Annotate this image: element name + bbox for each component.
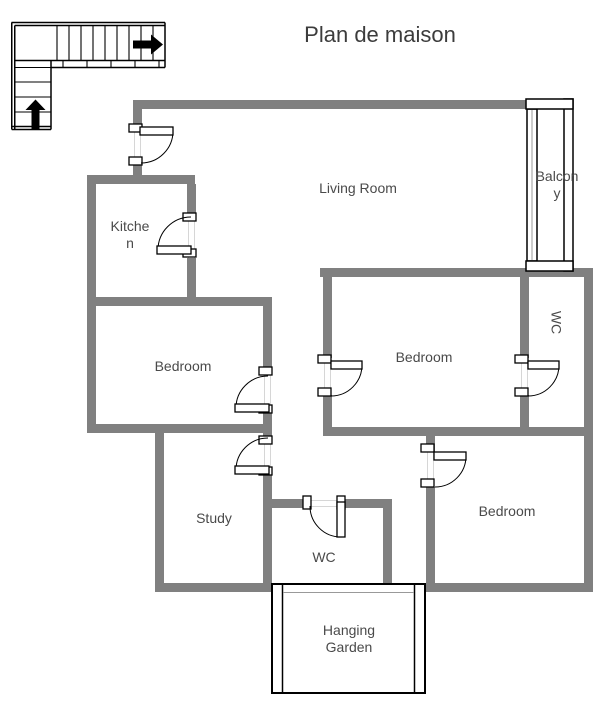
room-label-study: Study bbox=[164, 510, 264, 527]
room-label-balcony: Balcony bbox=[534, 168, 580, 202]
wall-segment bbox=[426, 583, 593, 592]
door-arc bbox=[158, 217, 191, 250]
door-leaf bbox=[140, 127, 173, 135]
door-jamb bbox=[421, 444, 434, 452]
wall-segment bbox=[155, 583, 273, 592]
room-label-bedroom-middle: Bedroom bbox=[374, 349, 474, 366]
wall-segment bbox=[520, 277, 529, 358]
wall-segment bbox=[323, 427, 593, 436]
door-swing-icon bbox=[157, 213, 196, 257]
door-swing-icon bbox=[235, 436, 272, 475]
wall-segment bbox=[187, 184, 196, 217]
door-leaf bbox=[337, 502, 345, 537]
door-swing-icon bbox=[129, 124, 173, 165]
room-label-wc-upper: WC bbox=[548, 303, 565, 343]
door-swing-icon bbox=[235, 367, 272, 413]
room-label-living-room: Living Room bbox=[308, 180, 408, 197]
wall-segment bbox=[87, 424, 272, 433]
floor-plan-canvas bbox=[0, 0, 609, 703]
wall-segment bbox=[263, 474, 272, 583]
door-leaf bbox=[528, 361, 559, 369]
room-label-bedroom-left: Bedroom bbox=[133, 358, 233, 375]
floor-plan-page: Plan de maison bbox=[0, 0, 609, 703]
door-leaf bbox=[157, 246, 191, 254]
wall-segment bbox=[155, 424, 164, 592]
wall-segment bbox=[133, 100, 142, 127]
wall-segment bbox=[383, 499, 392, 583]
up-arrow-icon bbox=[26, 100, 46, 130]
wall-segment bbox=[263, 499, 308, 508]
door-jamb bbox=[515, 355, 528, 363]
door-leaf bbox=[434, 452, 466, 460]
balcony-cap-top bbox=[526, 99, 573, 109]
wall-segment bbox=[87, 297, 272, 306]
wall-segment bbox=[323, 277, 332, 358]
door-jamb bbox=[318, 388, 331, 396]
wall-segment bbox=[520, 395, 529, 436]
room-label-hanging-garden: Hanging Garden bbox=[299, 622, 399, 656]
wall-segment bbox=[133, 100, 527, 109]
door-swing-icon bbox=[303, 496, 345, 537]
door-jamb bbox=[259, 436, 272, 444]
door-jamb bbox=[421, 479, 434, 487]
right-arrow-icon bbox=[133, 35, 163, 55]
door-arc bbox=[141, 131, 173, 163]
wall-segment bbox=[584, 268, 593, 592]
door-leaf bbox=[235, 404, 269, 412]
door-leaf bbox=[235, 466, 269, 474]
wall-segment bbox=[263, 297, 272, 375]
door-leaf bbox=[331, 361, 362, 369]
wall-segment bbox=[426, 487, 435, 583]
door-arc bbox=[236, 376, 268, 408]
balcony-cap-bottom bbox=[526, 261, 573, 271]
wall-segment bbox=[87, 175, 195, 184]
room-label-kitchen: Kitchen bbox=[108, 218, 152, 252]
room-label-wc-lower: WC bbox=[294, 549, 354, 566]
door-jamb bbox=[129, 157, 142, 165]
room-label-bedroom-right: Bedroom bbox=[457, 503, 557, 520]
door-jamb bbox=[515, 388, 528, 396]
door-jamb bbox=[259, 367, 272, 375]
door-jamb bbox=[318, 355, 331, 363]
